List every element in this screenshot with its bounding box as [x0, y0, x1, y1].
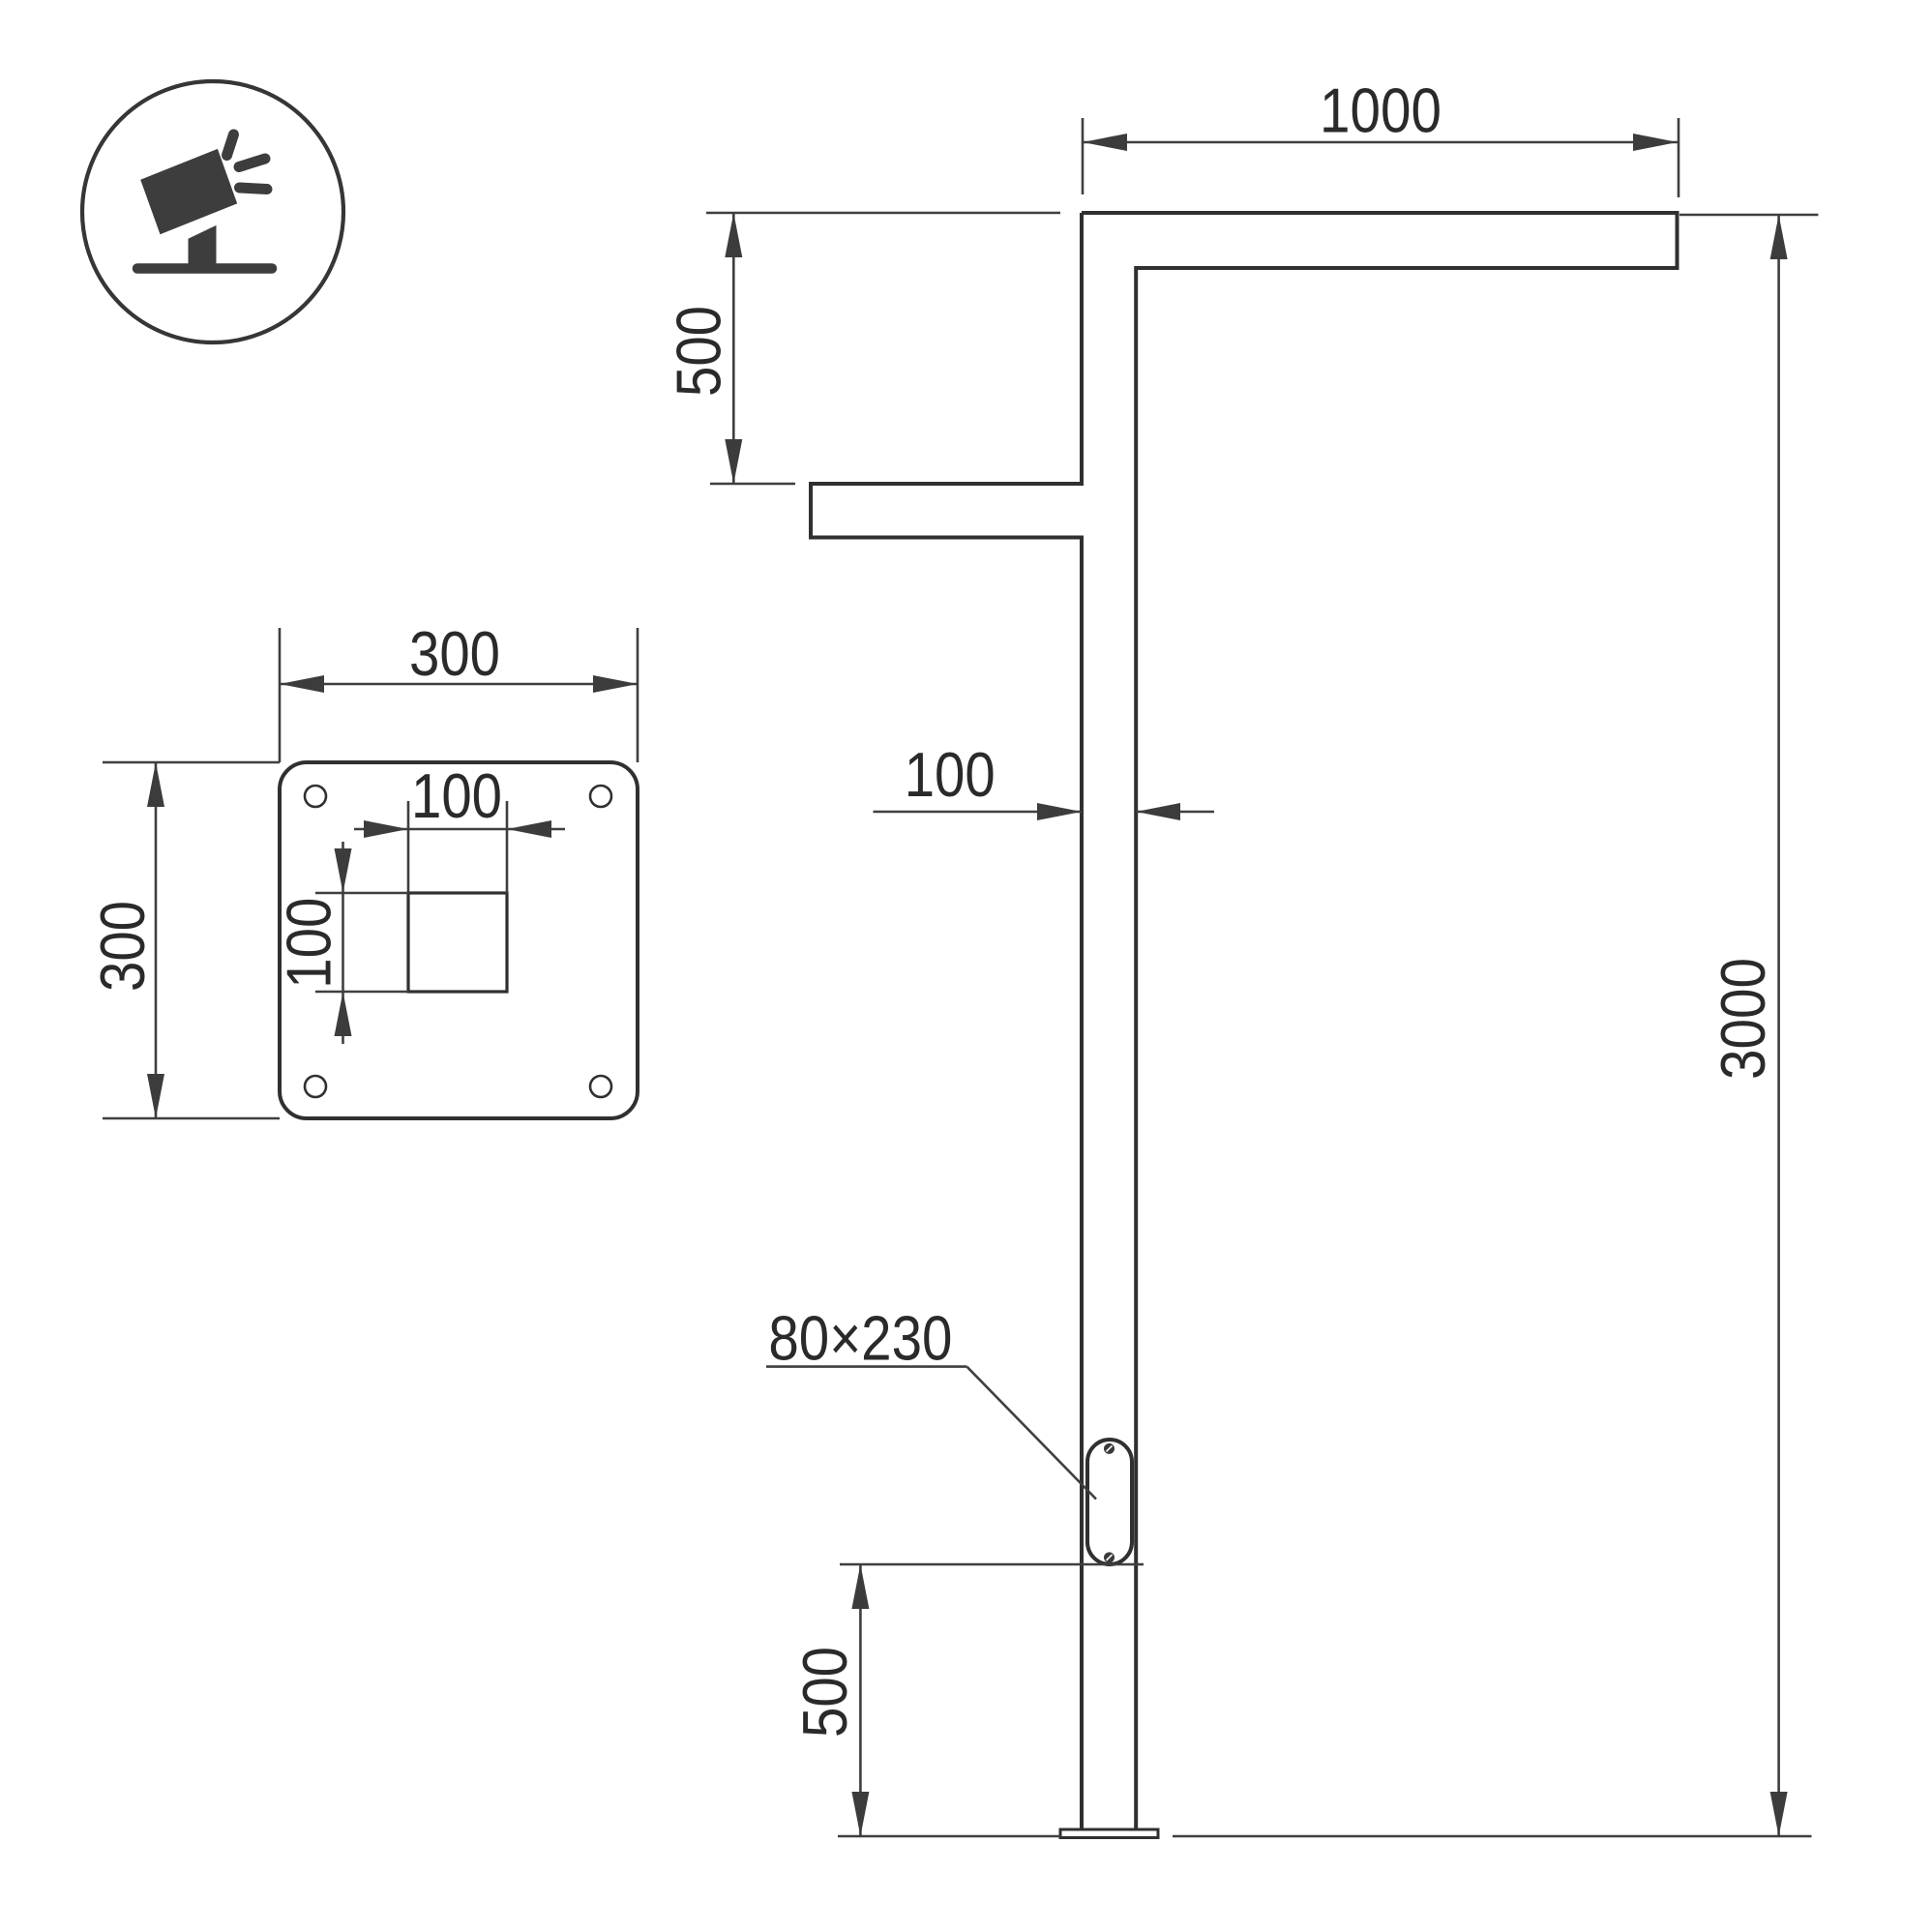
svg-text:80×230: 80×230	[768, 1303, 952, 1374]
svg-text:300: 300	[87, 901, 158, 992]
svg-text:100: 100	[411, 760, 502, 831]
svg-text:500: 500	[663, 306, 733, 397]
svg-text:500: 500	[789, 1647, 860, 1738]
svg-text:100: 100	[905, 739, 996, 810]
svg-text:100: 100	[273, 898, 343, 989]
svg-text:300: 300	[409, 618, 500, 689]
svg-text:3000: 3000	[1708, 958, 1778, 1080]
svg-text:1000: 1000	[1320, 75, 1442, 146]
